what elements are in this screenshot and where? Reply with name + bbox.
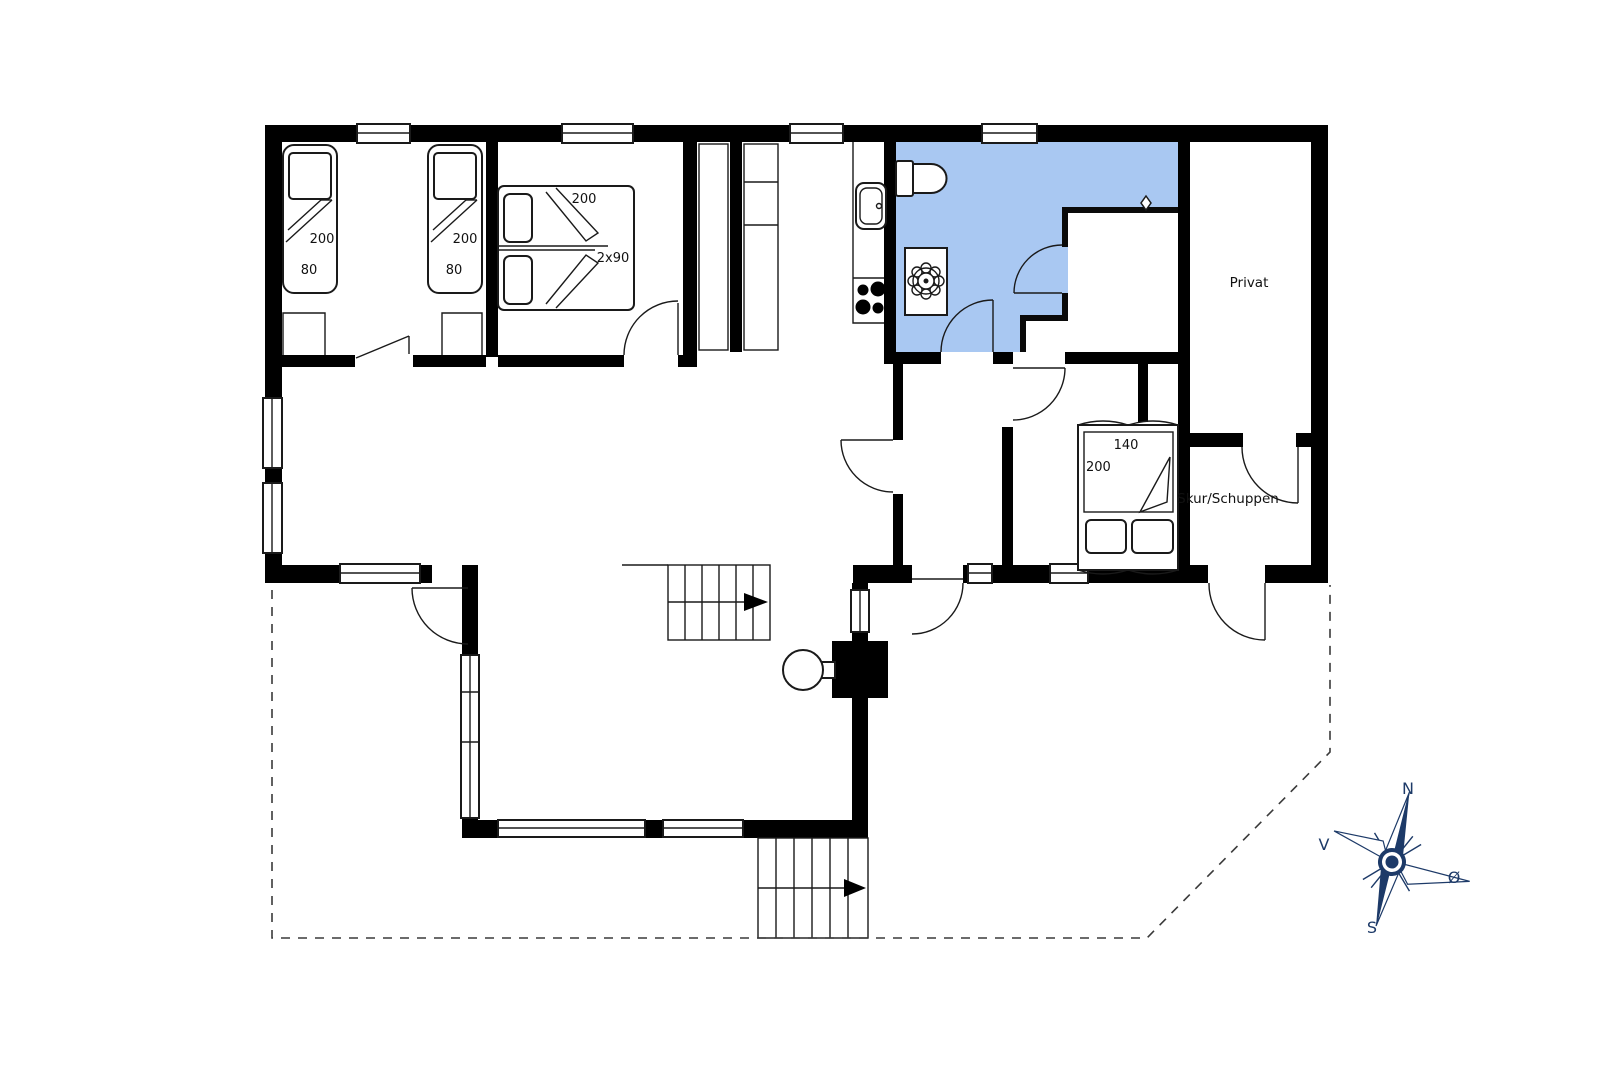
window-icon	[663, 820, 743, 837]
floorplan-drawing: 200 80 200 80 200 2x90	[0, 0, 1600, 1066]
arrow-right-icon	[844, 879, 866, 897]
window-icon	[968, 564, 992, 583]
window-icon	[263, 483, 282, 553]
terrace-boundary	[272, 585, 1330, 938]
kitchen-counter	[853, 142, 886, 323]
door-entrance	[912, 579, 963, 634]
window-icon	[851, 590, 869, 632]
interior-stairs	[622, 565, 770, 640]
window-icon	[263, 398, 282, 468]
door-skur	[1209, 583, 1265, 640]
window-icon	[790, 124, 843, 143]
compass-east-label: Ø	[1448, 868, 1461, 887]
shower-drain-icon	[905, 248, 947, 315]
floorplan-page: 200 80 200 80 200 2x90	[0, 0, 1600, 1066]
single-bed-2: 200 80	[428, 145, 482, 293]
bed-width-label: 80	[446, 263, 463, 278]
bed-width-label: 2x90	[597, 251, 630, 266]
closet	[283, 313, 325, 355]
sink-icon	[856, 183, 886, 229]
window-icon	[461, 655, 479, 818]
window-icon	[340, 564, 420, 583]
stove-burners-icon	[856, 282, 886, 315]
bed-width-label: 80	[301, 263, 318, 278]
bed-length-label: 200	[310, 232, 335, 247]
window-icon	[562, 124, 633, 143]
room-labels: Privat Skur/Schuppen	[1177, 275, 1279, 507]
compass-west-label: V	[1319, 835, 1330, 854]
bed-length-label: 200	[1086, 460, 1111, 475]
exterior-stairs	[758, 838, 868, 938]
window-icon	[357, 124, 410, 143]
window-icon	[982, 124, 1037, 143]
bed-length-label: 200	[453, 232, 478, 247]
double-bed: 200 2x90	[498, 186, 634, 310]
room-label-skur: Skur/Schuppen	[1177, 491, 1279, 507]
room-label-privat: Privat	[1230, 275, 1269, 291]
stairs	[622, 565, 868, 938]
master-bed: 140 200	[1078, 421, 1178, 574]
bed-width-label: 140	[1114, 438, 1139, 453]
wood-stove-icon	[832, 641, 888, 698]
bed-length-label: 200	[572, 192, 597, 207]
door-living-hall	[841, 440, 893, 492]
compass-rose-icon: N Ø S V	[1314, 777, 1488, 946]
door-master-bedroom	[1013, 368, 1065, 420]
toilet-icon	[896, 161, 947, 196]
compass-north-label: N	[1402, 779, 1414, 798]
closet	[442, 313, 482, 355]
door-twin-room	[356, 336, 409, 358]
wood-stove-flue-icon	[783, 650, 835, 690]
compass-south-label: S	[1367, 918, 1377, 937]
arrow-right-icon	[744, 593, 768, 611]
window-icon	[498, 820, 645, 837]
single-bed-1: 200 80	[283, 145, 337, 293]
closet	[744, 144, 778, 350]
closet	[699, 144, 728, 350]
door-conservatory	[412, 588, 468, 644]
